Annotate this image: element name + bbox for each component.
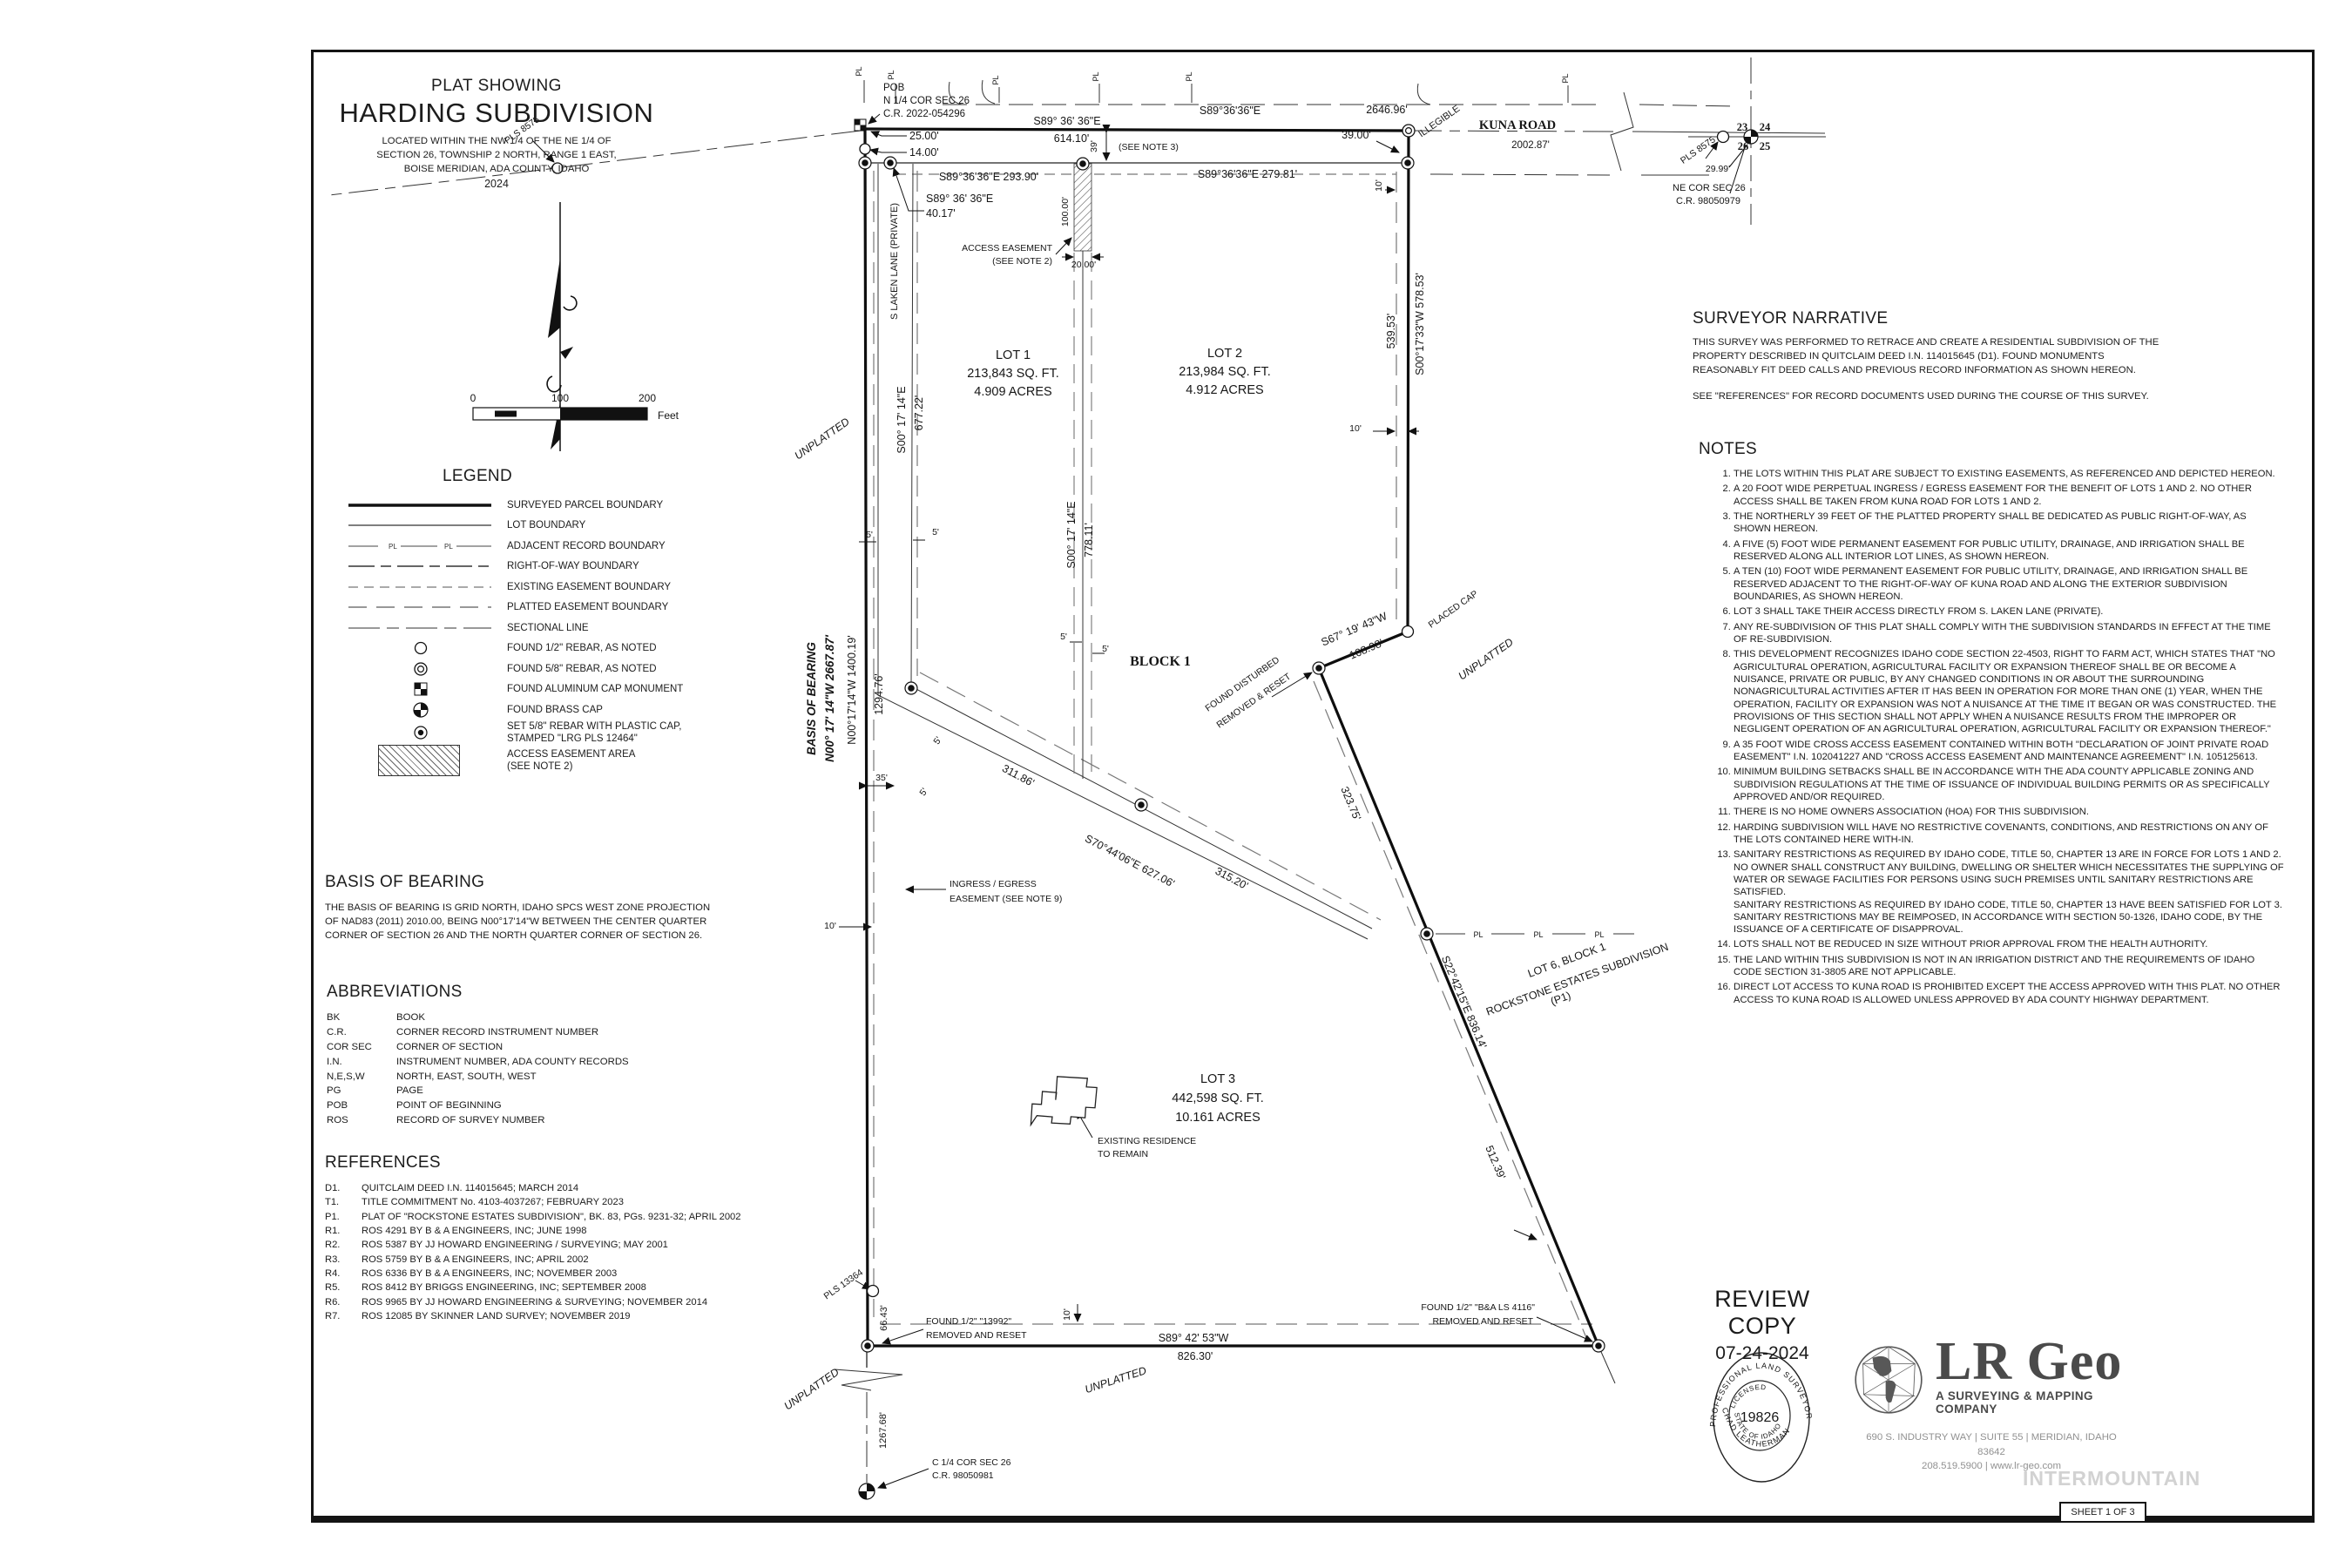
reference-id: R1. xyxy=(325,1224,362,1238)
abbreviation-row: PGPAGE xyxy=(327,1084,762,1098)
reference-id: D1. xyxy=(325,1181,362,1195)
plat-label: S89°36'36"E xyxy=(1200,105,1260,117)
abbreviations: ABBREVIATIONS BKBOOKC.R.CORNER RECORD IN… xyxy=(327,983,762,1128)
note-item: THIS DEVELOPMENT RECOGNIZES IDAHO CODE S… xyxy=(1734,648,2284,735)
abbreviation: N,E,S,W xyxy=(327,1070,396,1085)
note-item: ANY RE-SUBDIVISION OF THIS PLAT SHALL CO… xyxy=(1734,621,2284,646)
note-item: MINIMUM BUILDING SETBACKS SHALL BE IN AC… xyxy=(1734,766,2284,803)
plat-label: 5' xyxy=(1060,632,1067,642)
bullseye-swatch xyxy=(347,724,497,741)
scale-unit: Feet xyxy=(658,409,679,422)
reference-id: R3. xyxy=(325,1253,362,1267)
abbreviation-row: ROSRECORD OF SURVEY NUMBER xyxy=(327,1113,762,1128)
plat-label: 5' xyxy=(866,530,873,540)
plat-label: BLOCK 1 xyxy=(1130,654,1191,669)
plat-label: 10' xyxy=(1349,423,1362,434)
legend-item-label: FOUND 5/8" REBAR, AS NOTED xyxy=(507,663,657,675)
abbreviation: POB xyxy=(327,1098,396,1113)
abbreviation: ROS xyxy=(327,1113,396,1128)
plat-label: TO REMAIN xyxy=(1098,1149,1148,1159)
reference-text: TITLE COMMITMENT No. 4103-4037267; FEBRU… xyxy=(362,1195,624,1209)
notes-list: THE LOTS WITHIN THIS PLAT ARE SUBJECT TO… xyxy=(1699,468,2284,1006)
pl-line-swatch: PLPL xyxy=(347,537,497,555)
globe-icon xyxy=(1852,1336,1925,1423)
reference-id: R6. xyxy=(325,1295,362,1309)
found-five-eighths-rebar xyxy=(1402,125,1415,137)
plat-label: N 1/4 COR SEC 26 xyxy=(883,96,970,106)
plat-label: ACCESS EASEMENT xyxy=(962,243,1052,253)
plat-label: UNPLATTED xyxy=(782,1366,841,1413)
reference-row: T1.TITLE COMMITMENT No. 4103-4037267; FE… xyxy=(325,1195,848,1209)
references: REFERENCES D1.QUITCLAIM DEED I.N. 114015… xyxy=(325,1153,848,1323)
title-block: PLAT SHOWING HARDING SUBDIVISION LOCATED… xyxy=(331,77,662,190)
plat-label: LOT 1 xyxy=(996,348,1031,362)
reference-row: P1.PLAT OF "ROCKSTONE ESTATES SUBDIVISIO… xyxy=(325,1210,848,1224)
plat-label: 539.53' xyxy=(1385,314,1397,349)
legend-item-label: ACCESS EASEMENT AREA (SEE NOTE 2) xyxy=(507,748,635,774)
plat-label: UNPLATTED xyxy=(793,416,852,463)
plat-label: 20.00' xyxy=(1071,260,1096,270)
access-easement-hatch xyxy=(1074,164,1092,251)
reference-row: R5.ROS 8412 BY BRIGGS ENGINEERING, INC; … xyxy=(325,1281,848,1294)
legend-item: ACCESS EASEMENT AREA (SEE NOTE 2) xyxy=(347,745,721,776)
plat-label: EASEMENT (SEE NOTE 9) xyxy=(950,894,1062,904)
hatch-swatch xyxy=(347,745,497,776)
legend-item-label: FOUND 1/2" REBAR, AS NOTED xyxy=(507,642,657,654)
basis-of-bearing: BASIS OF BEARING THE BASIS OF BEARING IS… xyxy=(325,873,760,943)
reference-text: PLAT OF "ROCKSTONE ESTATES SUBDIVISION",… xyxy=(362,1210,741,1224)
plat-label: NE COR SEC 26 xyxy=(1673,183,1746,193)
plat-label: 5' xyxy=(932,527,939,537)
review-copy-label: REVIEW COPY xyxy=(1680,1286,1845,1340)
plat-label: 677.22' xyxy=(913,395,925,431)
plat-label: S LAKEN LANE (PRIVATE) xyxy=(889,203,900,320)
plat-label: 14.00' xyxy=(909,146,939,159)
legend-item: SET 5/8" REBAR WITH PLASTIC CAP, STAMPED… xyxy=(347,720,721,746)
thick-solid-swatch xyxy=(347,497,497,514)
legend-item-label: ADJACENT RECORD BOUNDARY xyxy=(507,540,666,552)
note-item: THE NORTHERLY 39 FEET OF THE PLATTED PRO… xyxy=(1734,510,2284,536)
circle-open-swatch xyxy=(347,639,497,657)
abbreviations-heading: ABBREVIATIONS xyxy=(327,983,762,1002)
plat-label: C.R. 98050981 xyxy=(932,1470,994,1481)
abbreviation-row: I.N.INSTRUMENT NUMBER, ADA COUNTY RECORD… xyxy=(327,1055,762,1070)
plat-label: PL xyxy=(1594,930,1604,939)
plat-label: PL xyxy=(1185,71,1193,81)
plat-label: N00° 17' 14"W 2667.87' xyxy=(823,634,836,762)
plat-label: S00°17'33"W 578.53' xyxy=(1414,273,1426,375)
abbreviation-meaning: NORTH, EAST, SOUTH, WEST xyxy=(396,1070,537,1085)
plat-label: 213,843 SQ. FT. xyxy=(967,367,1059,381)
legend-item-label: PLATTED EASEMENT BOUNDARY xyxy=(507,601,668,613)
notes: NOTES THE LOTS WITHIN THIS PLAT ARE SUBJ… xyxy=(1699,440,2284,1009)
review-copy: REVIEW COPY 07-24-2024 xyxy=(1680,1286,1845,1364)
scale-200: 200 xyxy=(639,392,656,404)
plat-label: 323.75' xyxy=(1338,785,1363,822)
reference-id: R2. xyxy=(325,1238,362,1252)
plat-label: 2646.96' xyxy=(1366,104,1408,116)
references-rows: D1.QUITCLAIM DEED I.N. 114015645; MARCH … xyxy=(325,1181,848,1323)
abbreviation-row: COR SECCORNER OF SECTION xyxy=(327,1040,762,1055)
plat-label: 10' xyxy=(1374,179,1384,192)
stamp-license-number: 19826 xyxy=(1740,1410,1780,1425)
legend-item: FOUND 5/8" REBAR, AS NOTED xyxy=(347,659,721,679)
note-item: A TEN (10) FOOT WIDE PERMANENT EASEMENT … xyxy=(1734,565,2284,603)
abbreviations-rows: BKBOOKC.R.CORNER RECORD INSTRUMENT NUMBE… xyxy=(327,1010,762,1128)
plat-label: S00° 17' 14"E xyxy=(1065,501,1078,568)
references-heading: REFERENCES xyxy=(325,1153,848,1173)
note-item: SANITARY RESTRICTIONS AS REQUIRED BY IDA… xyxy=(1734,848,2284,936)
reference-text: ROS 8412 BY BRIGGS ENGINEERING, INC; SEP… xyxy=(362,1281,646,1294)
circle-double-swatch xyxy=(347,660,497,678)
surveyed-parcel-boundary xyxy=(865,129,1598,1346)
plat-label: 100.00' xyxy=(1060,197,1071,226)
plat-label: N00°17'14"W 1400.19' xyxy=(846,635,858,744)
plat-label: LOT 2 xyxy=(1207,347,1242,361)
legend-item: FOUND ALUMINUM CAP MONUMENT xyxy=(347,679,721,700)
plat-label: 29.99' xyxy=(1706,164,1730,174)
plat-label: 213,984 SQ. FT. xyxy=(1179,365,1271,379)
reference-row: D1.QUITCLAIM DEED I.N. 114015645; MARCH … xyxy=(325,1181,848,1195)
line-break-symbol xyxy=(1611,92,1633,171)
plat-label: PL xyxy=(1561,73,1570,83)
note-item: A 35 FOOT WIDE CROSS ACCESS EASEMENT CON… xyxy=(1734,739,2284,764)
plat-label: 315.20' xyxy=(1213,865,1250,892)
legend-item: SURVEYED PARCEL BOUNDARY xyxy=(347,495,721,516)
plat-label: 1267.68' xyxy=(878,1412,889,1449)
stamp-inner-top: LICENSED xyxy=(1728,1383,1767,1409)
abbreviation-meaning: INSTRUMENT NUMBER, ADA COUNTY RECORDS xyxy=(396,1055,629,1070)
reference-text: ROS 5387 BY JJ HOWARD ENGINEERING / SURV… xyxy=(362,1238,668,1252)
reference-text: ROS 9965 BY JJ HOWARD ENGINEERING & SURV… xyxy=(362,1295,707,1309)
reference-id: P1. xyxy=(325,1210,362,1224)
reference-row: R6.ROS 9965 BY JJ HOWARD ENGINEERING & S… xyxy=(325,1295,848,1309)
reference-text: ROS 4291 BY B & A ENGINEERS, INC; JUNE 1… xyxy=(362,1224,586,1238)
narrative-heading: SURVEYOR NARRATIVE xyxy=(1693,309,2233,328)
plat-sheet: 0 100 200 Feet PROFESSIONAL LAND SURVEYO… xyxy=(0,0,2352,1568)
reference-text: ROS 12085 BY SKINNER LAND SURVEY; NOVEMB… xyxy=(362,1309,631,1323)
abbreviation: COR SEC xyxy=(327,1040,396,1055)
legend-item: SECTIONAL LINE xyxy=(347,618,721,639)
easement-and-lot-lines xyxy=(865,163,1592,1340)
legend-item-label: FOUND BRASS CAP xyxy=(507,704,603,716)
notes-heading: NOTES xyxy=(1699,440,2284,459)
line-break-symbol xyxy=(835,1369,902,1390)
plat-label: PL xyxy=(1533,930,1543,939)
plat-label: POB xyxy=(883,83,905,93)
company-name: LR Geo xyxy=(1936,1336,2131,1388)
plat-label: FOUND 1/2" "B&A LS 4116" xyxy=(1421,1302,1535,1313)
dash-long-swatch xyxy=(347,598,497,616)
plat-label: KUNA ROAD xyxy=(1479,118,1556,132)
plat-label: 66.43' xyxy=(879,1305,889,1331)
aluminum-cap-monument xyxy=(855,119,866,131)
abbreviation: PG xyxy=(327,1084,396,1098)
legend-item-label: SET 5/8" REBAR WITH PLASTIC CAP, STAMPED… xyxy=(507,720,682,746)
surveyor-stamp: PROFESSIONAL LAND SURVEYOR CHAD LEATHERM… xyxy=(1708,1353,1814,1482)
plat-label: 10.161 ACRES xyxy=(1175,1111,1260,1125)
plat-label: C.R. 98050979 xyxy=(1676,196,1740,206)
company-logo-block: LR Geo A SURVEYING & MAPPING COMPANY 690… xyxy=(1852,1336,2131,1474)
plat-label: 5' xyxy=(917,787,929,798)
note-item: LOTS SHALL NOT BE REDUCED IN SIZE WITHOU… xyxy=(1734,938,2284,950)
legend-item-label: SURVEYED PARCEL BOUNDARY xyxy=(507,499,663,511)
note-item: A FIVE (5) FOOT WIDE PERMANENT EASEMENT … xyxy=(1734,538,2284,564)
scale-100: 100 xyxy=(551,392,569,404)
legend-item-label: RIGHT-OF-WAY BOUNDARY xyxy=(507,560,639,572)
legend-heading: LEGEND xyxy=(347,467,608,486)
abbreviation-meaning: RECORD OF SURVEY NUMBER xyxy=(396,1113,544,1128)
plat-label: 10' xyxy=(1062,1308,1072,1321)
legend-item: RIGHT-OF-WAY BOUNDARY xyxy=(347,557,721,578)
plat-showing-label: PLAT SHOWING xyxy=(331,77,662,96)
reference-text: ROS 5759 BY B & A ENGINEERS, INC; APRIL … xyxy=(362,1253,589,1267)
note-item: LOT 3 SHALL TAKE THEIR ACCESS DIRECTLY F… xyxy=(1734,605,2284,618)
plat-label: 442,598 SQ. FT. xyxy=(1172,1092,1264,1105)
abbreviation-row: BKBOOK xyxy=(327,1010,762,1025)
existing-residence-outline xyxy=(1017,1062,1107,1147)
reference-id: R5. xyxy=(325,1281,362,1294)
plat-label: PL xyxy=(887,70,896,79)
plat-label: C 1/4 COR SEC 26 xyxy=(932,1457,1011,1468)
note-item: THE LAND WITHIN THIS SUBDIVISION IS NOT … xyxy=(1734,954,2284,979)
reference-id: T1. xyxy=(325,1195,362,1209)
plat-label: S89° 36' 36"E xyxy=(926,193,993,205)
plat-label: 39.00' xyxy=(1342,129,1371,141)
plat-label: 5' xyxy=(931,735,943,747)
plat-label: INGRESS / EGRESS xyxy=(950,879,1037,889)
reference-row: R1.ROS 4291 BY B & A ENGINEERS, INC; JUN… xyxy=(325,1224,848,1238)
legend-item: FOUND BRASS CAP xyxy=(347,700,721,720)
plat-label: 108.98' xyxy=(1348,637,1385,662)
plat-label: PL xyxy=(855,66,863,76)
plat-label: 826.30' xyxy=(1178,1350,1213,1362)
plat-label: (SEE NOTE 2) xyxy=(992,256,1052,267)
scale-bar: 0 100 200 Feet xyxy=(470,392,679,422)
plat-label: 512.39' xyxy=(1483,1144,1508,1181)
legend-item: PLPLADJACENT RECORD BOUNDARY xyxy=(347,536,721,557)
plat-label: BASIS OF BEARING xyxy=(805,642,818,755)
plat-year: 2024 xyxy=(331,178,662,190)
plat-label: 4.909 ACRES xyxy=(974,385,1051,399)
plat-label: 24 xyxy=(1760,121,1771,133)
legend-item: PLATTED EASEMENT BOUNDARY xyxy=(347,598,721,618)
sheet-number-label: SHEET 1 OF 3 xyxy=(2071,1507,2134,1517)
plat-label: ILLEGIBLE xyxy=(1416,104,1462,139)
subdivision-title: HARDING SUBDIVISION xyxy=(331,98,662,129)
plat-label: PL xyxy=(1473,930,1483,939)
thin-solid-swatch xyxy=(347,517,497,534)
note-item: HARDING SUBDIVISION WILL HAVE NO RESTRIC… xyxy=(1734,821,2284,847)
svg-text:PL: PL xyxy=(389,543,397,551)
plat-label: 10' xyxy=(824,921,836,931)
plat-label: PL xyxy=(991,75,1000,84)
plat-label: 35' xyxy=(875,773,888,783)
brass-cap xyxy=(859,1484,875,1499)
company-tagline: A SURVEYING & MAPPING COMPANY xyxy=(1936,1389,2131,1416)
plat-label: S89° 42' 53"W xyxy=(1159,1332,1229,1344)
plat-label: S89° 36' 36"E xyxy=(1033,115,1100,127)
plat-label: S00° 17' 14"E xyxy=(896,386,908,453)
plat-label: S70°44'06"E 627.06' xyxy=(1083,832,1177,889)
cap-square-swatch xyxy=(347,680,497,698)
plat-label: 778.11' xyxy=(1083,523,1095,558)
plat-label: REMOVED AND RESET xyxy=(1432,1316,1533,1327)
abbreviation: C.R. xyxy=(327,1025,396,1040)
plat-label: 26 xyxy=(1738,140,1749,152)
plat-label: 4.912 ACRES xyxy=(1186,383,1263,397)
surveyor-narrative: SURVEYOR NARRATIVE THIS SURVEY WAS PERFO… xyxy=(1693,309,2233,403)
plat-label: 23 xyxy=(1737,121,1748,133)
review-copy-date: 07-24-2024 xyxy=(1680,1343,1845,1364)
plat-label: PLACED CAP xyxy=(1427,589,1480,631)
abbreviation-row: POBPOINT OF BEGINNING xyxy=(327,1098,762,1113)
plat-label: PL xyxy=(1092,71,1100,81)
plat-label: 5' xyxy=(1102,644,1109,654)
plat-label: S89°36'36"E 279.81' xyxy=(1198,168,1297,180)
plat-label: 39' xyxy=(1089,140,1099,152)
company-address: 690 S. INDUSTRY WAY | SUITE 55 | MERIDIA… xyxy=(1852,1430,2131,1459)
note-item: THE LOTS WITHIN THIS PLAT ARE SUBJECT TO… xyxy=(1734,468,2284,480)
abbreviation-row: C.R.CORNER RECORD INSTRUMENT NUMBER xyxy=(327,1025,762,1040)
abbreviation-row: N,E,S,WNORTH, EAST, SOUTH, WEST xyxy=(327,1070,762,1085)
sheet-number-box: SHEET 1 OF 3 xyxy=(2059,1502,2146,1523)
narrative-para2: SEE "REFERENCES" FOR RECORD DOCUMENTS US… xyxy=(1693,389,2233,403)
plat-label: REMOVED AND RESET xyxy=(926,1330,1027,1341)
abbreviation: I.N. xyxy=(327,1055,396,1070)
legend-rows: SURVEYED PARCEL BOUNDARYLOT BOUNDARYPLPL… xyxy=(347,495,721,776)
plat-label: 311.86' xyxy=(1000,762,1037,789)
reference-text: ROS 6336 BY B & A ENGINEERS, INC; NOVEMB… xyxy=(362,1267,617,1281)
set-rebar-bullseye xyxy=(859,157,1605,1352)
dash-short-swatch xyxy=(347,578,497,596)
plat-label: S89°36'36"E 293.90' xyxy=(939,171,1038,183)
note-item: THERE IS NO HOME OWNERS ASSOCIATION (HOA… xyxy=(1734,806,2284,818)
abbreviation-meaning: BOOK xyxy=(396,1010,425,1025)
watermark: INTERMOUNTAIN xyxy=(2023,1467,2200,1490)
plat-label: 40.17' xyxy=(926,207,956,220)
plat-label: 614.10' xyxy=(1054,132,1090,145)
legend-item-label: SECTIONAL LINE xyxy=(507,622,589,634)
abbreviation-meaning: CORNER OF SECTION xyxy=(396,1040,503,1055)
legend-item: EXISTING EASEMENT BOUNDARY xyxy=(347,577,721,598)
brass-cap-swatch xyxy=(347,701,497,719)
abbreviation-meaning: PAGE xyxy=(396,1084,423,1098)
scale-0: 0 xyxy=(470,392,476,404)
plat-label: 25.00' xyxy=(909,130,939,142)
reference-row: R7.ROS 12085 BY SKINNER LAND SURVEY; NOV… xyxy=(325,1309,848,1323)
reference-text: QUITCLAIM DEED I.N. 114015645; MARCH 201… xyxy=(362,1181,578,1195)
legend: LEGEND SURVEYED PARCEL BOUNDARYLOT BOUND… xyxy=(347,467,721,776)
note-item: DIRECT LOT ACCESS TO KUNA ROAD IS PROHIB… xyxy=(1734,981,2284,1006)
plat-label: (SEE NOTE 3) xyxy=(1119,142,1179,152)
sectional-swatch xyxy=(347,619,497,637)
abbreviation-meaning: CORNER RECORD INSTRUMENT NUMBER xyxy=(396,1025,598,1040)
note-item: A 20 FOOT WIDE PERPETUAL INGRESS / EGRES… xyxy=(1734,483,2284,508)
basis-body: THE BASIS OF BEARING IS GRID NORTH, IDAH… xyxy=(325,901,760,943)
reference-row: R2.ROS 5387 BY JJ HOWARD ENGINEERING / S… xyxy=(325,1238,848,1252)
plat-label: EXISTING RESIDENCE xyxy=(1098,1136,1196,1146)
narrative-para1: THIS SURVEY WAS PERFORMED TO RETRACE AND… xyxy=(1693,335,2233,377)
plat-label: UNPLATTED xyxy=(1084,1364,1148,1396)
legend-item: FOUND 1/2" REBAR, AS NOTED xyxy=(347,639,721,659)
reference-row: R4.ROS 6336 BY B & A ENGINEERS, INC; NOV… xyxy=(325,1267,848,1281)
legend-item-label: EXISTING EASEMENT BOUNDARY xyxy=(507,581,671,593)
location-description: LOCATED WITHIN THE NW 1/4 OF THE NE 1/4 … xyxy=(331,134,662,176)
legend-item-label: FOUND ALUMINUM CAP MONUMENT xyxy=(507,683,683,695)
plat-label: 25 xyxy=(1760,140,1771,152)
reference-id: R7. xyxy=(325,1309,362,1323)
svg-text:PL: PL xyxy=(444,543,453,551)
plat-label: 2002.87' xyxy=(1511,140,1550,151)
row-dash-swatch xyxy=(347,558,497,575)
plat-label: FOUND 1/2" "13992" xyxy=(926,1316,1011,1327)
abbreviation: BK xyxy=(327,1010,396,1025)
abbreviation-meaning: POINT OF BEGINNING xyxy=(396,1098,502,1113)
plat-label: C.R. 2022-054296 xyxy=(883,109,965,119)
reference-id: R4. xyxy=(325,1267,362,1281)
legend-item: LOT BOUNDARY xyxy=(347,516,721,537)
legend-item-label: LOT BOUNDARY xyxy=(507,519,585,531)
plat-label: LOT 3 xyxy=(1200,1072,1235,1086)
reference-row: R3.ROS 5759 BY B & A ENGINEERS, INC; APR… xyxy=(325,1253,848,1267)
plat-label: 1294.76' xyxy=(873,673,885,715)
basis-heading: BASIS OF BEARING xyxy=(325,873,760,892)
plat-label: UNPLATTED xyxy=(1456,636,1516,683)
